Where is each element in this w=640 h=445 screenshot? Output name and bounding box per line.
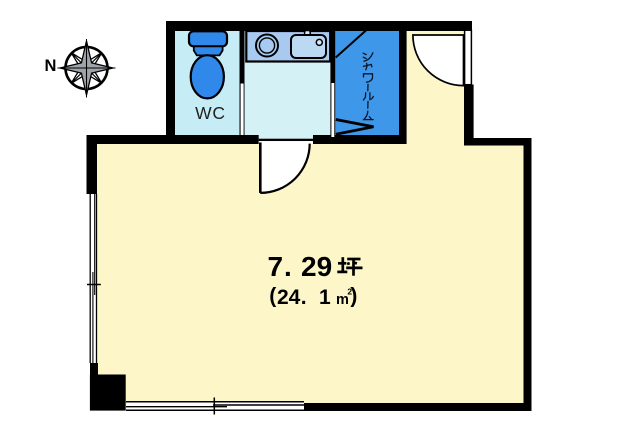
svg-text:29: 29 bbox=[301, 251, 332, 282]
svg-text:): ) bbox=[350, 285, 357, 308]
svg-text:.: . bbox=[284, 251, 292, 282]
svg-text:1: 1 bbox=[319, 286, 331, 309]
svg-text:N: N bbox=[45, 57, 57, 75]
svg-text:24: 24 bbox=[277, 286, 301, 309]
svg-text:7: 7 bbox=[268, 251, 284, 282]
svg-text:(: ( bbox=[269, 285, 276, 308]
svg-text:WC: WC bbox=[195, 103, 226, 123]
svg-text:.: . bbox=[301, 286, 307, 309]
